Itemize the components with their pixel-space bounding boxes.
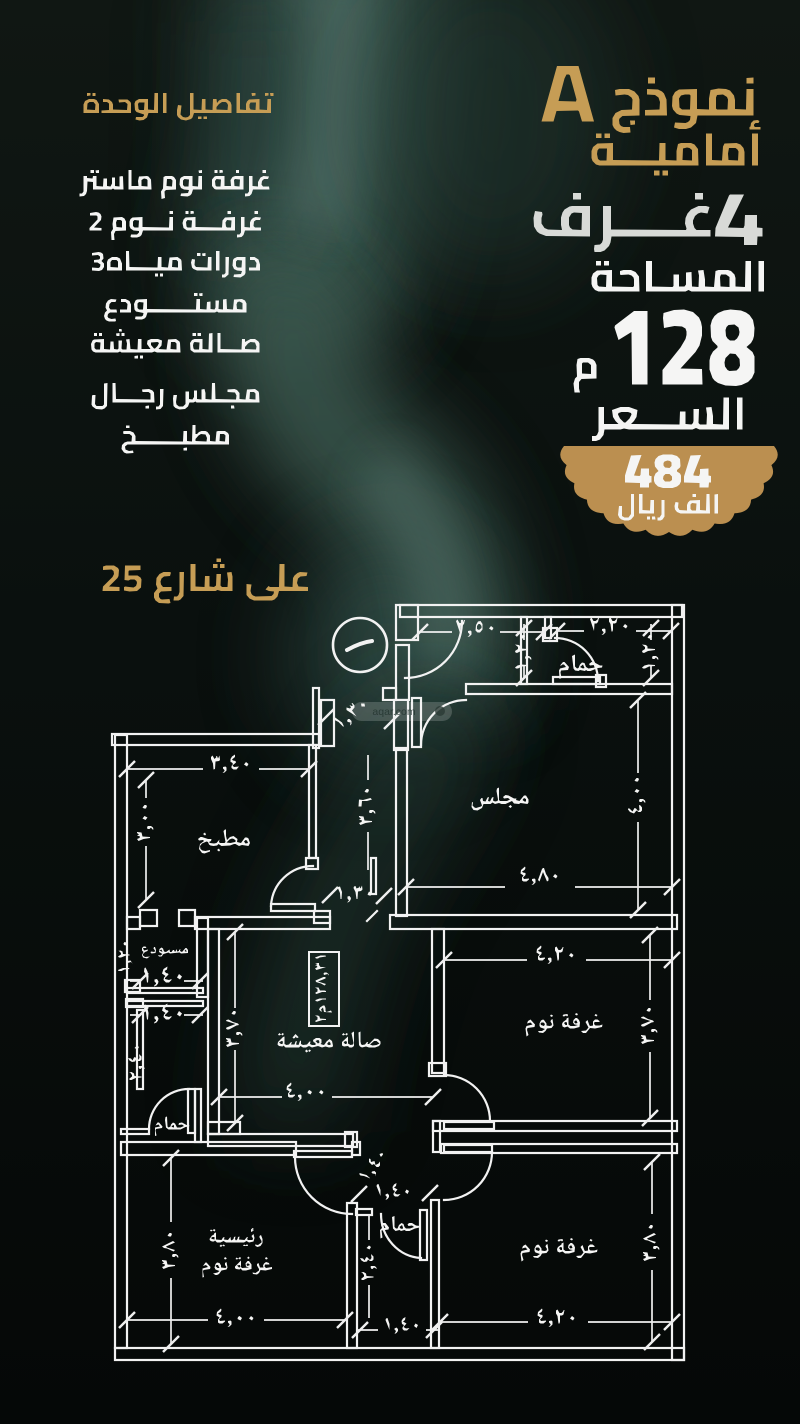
svg-text:aqar.com: aqar.com <box>372 706 415 718</box>
